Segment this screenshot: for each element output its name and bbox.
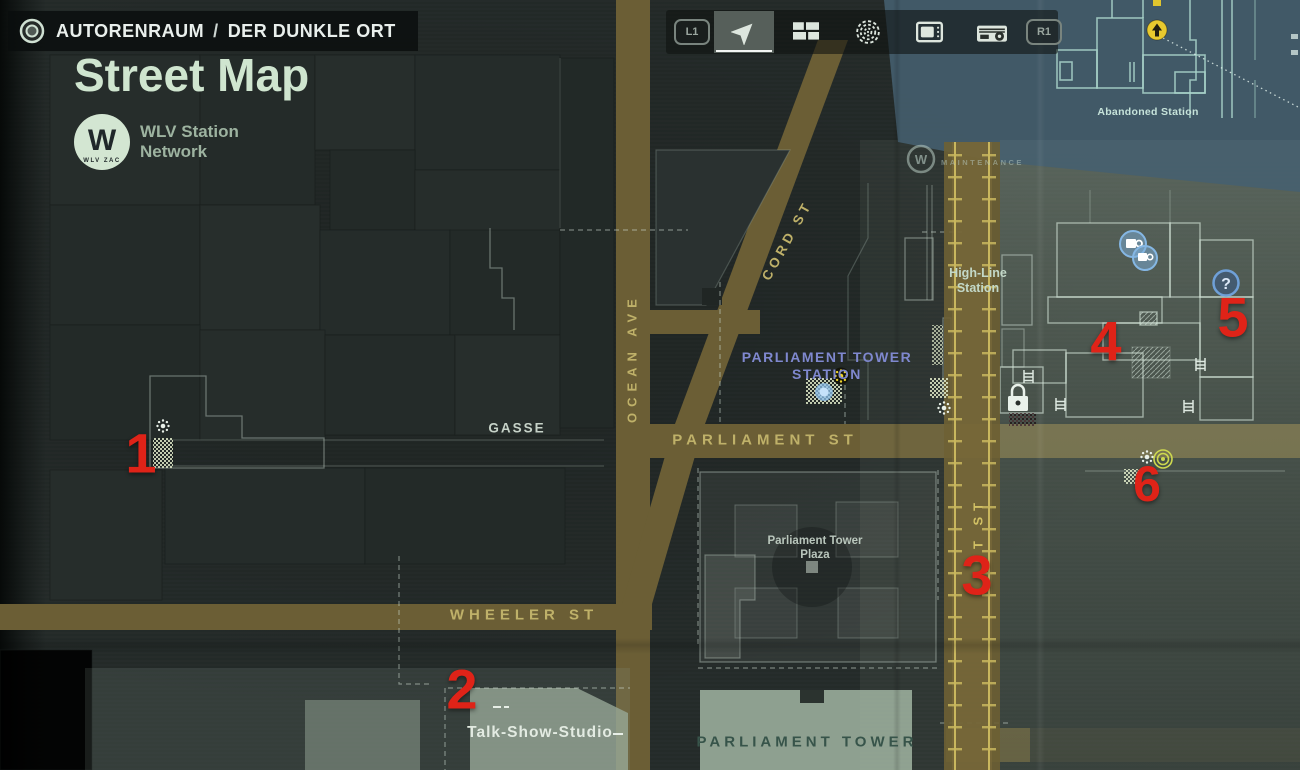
guide-marker-4: 4 — [1090, 309, 1121, 374]
map-title: Street Map — [74, 48, 309, 102]
street-light-icon — [937, 401, 950, 414]
place-label-parliament-tower-station: PARLIAMENT TOWER STATION — [742, 349, 912, 383]
guide-marker-3: 3 — [961, 543, 992, 608]
edge-marker-yellow — [1153, 0, 1161, 6]
guide-marker-1: 1 — [125, 421, 156, 486]
street-label-wheeler-st: WHEELER ST — [450, 607, 598, 624]
tab-tv[interactable] — [900, 11, 960, 53]
place-label-parliament-tower: PARLIAMENT TOWER — [697, 734, 918, 751]
area-name: AUTORENRAUM — [56, 21, 204, 42]
guide-marker-2: 2 — [446, 657, 477, 722]
left-bumper-button[interactable]: L1 — [674, 19, 710, 45]
wlv-network-name: WLV Station Network — [140, 122, 239, 161]
street-map-screen: W — [0, 0, 1300, 770]
breadcrumb: AUTORENRAUM / DER DUNKLE ORT — [56, 21, 396, 42]
menu-tab-bar: L1 — [666, 10, 1058, 54]
street-label-parliament-st: PARLIAMENT ST — [672, 432, 858, 449]
ft-st-rail — [944, 142, 1000, 770]
wlv-ring-text: WLV ZAC — [83, 158, 120, 164]
location-header: AUTORENRAUM / DER DUNKLE ORT — [8, 11, 418, 51]
tab-case-board[interactable] — [776, 11, 836, 53]
exit-up-icon — [1147, 20, 1167, 40]
street-label-ocean-ave: OCEAN AVE — [616, 283, 648, 433]
right-bumper-button[interactable]: R1 — [1026, 19, 1062, 45]
place-label-gasse: GASSE — [488, 421, 545, 436]
tab-radio[interactable] — [962, 11, 1022, 53]
location-name: DER DUNKLE ORT — [228, 21, 396, 42]
tv-icon — [916, 20, 944, 44]
wlv-network-logo: W WLV ZAC — [72, 112, 132, 177]
place-label-parliament-tower-plaza: Parliament Tower Plaza — [767, 534, 862, 562]
tab-echoes[interactable] — [838, 11, 898, 53]
entrance-hatch-icon — [930, 378, 948, 398]
place-label-talk-show-studio: Talk-Show-Studio — [467, 724, 613, 742]
stairs-hatch — [932, 325, 943, 365]
place-label-maintenance: MAINTENANCE — [941, 158, 1024, 167]
spiral-icon — [855, 19, 881, 45]
guide-marker-5: 5 — [1217, 285, 1248, 350]
wlv-monogram: W — [88, 124, 117, 157]
radio-icon — [977, 21, 1007, 43]
parliament-tower-plaza — [700, 472, 936, 662]
navigation-arrow-icon — [731, 19, 757, 45]
waypoint-circle-icon — [18, 17, 46, 45]
breadcrumb-separator: / — [213, 21, 219, 42]
wlv-maintenance-monogram: W — [915, 152, 928, 167]
guide-marker-6: 6 — [1133, 455, 1161, 513]
case-board-icon — [793, 21, 819, 43]
danger-hatch — [1009, 413, 1036, 426]
street-light-icon — [156, 419, 169, 432]
place-label-highline-station: High-Line Station — [949, 266, 1007, 297]
place-label-abandoned-station: Abandoned Station — [1097, 106, 1198, 118]
tab-map[interactable] — [714, 11, 774, 53]
